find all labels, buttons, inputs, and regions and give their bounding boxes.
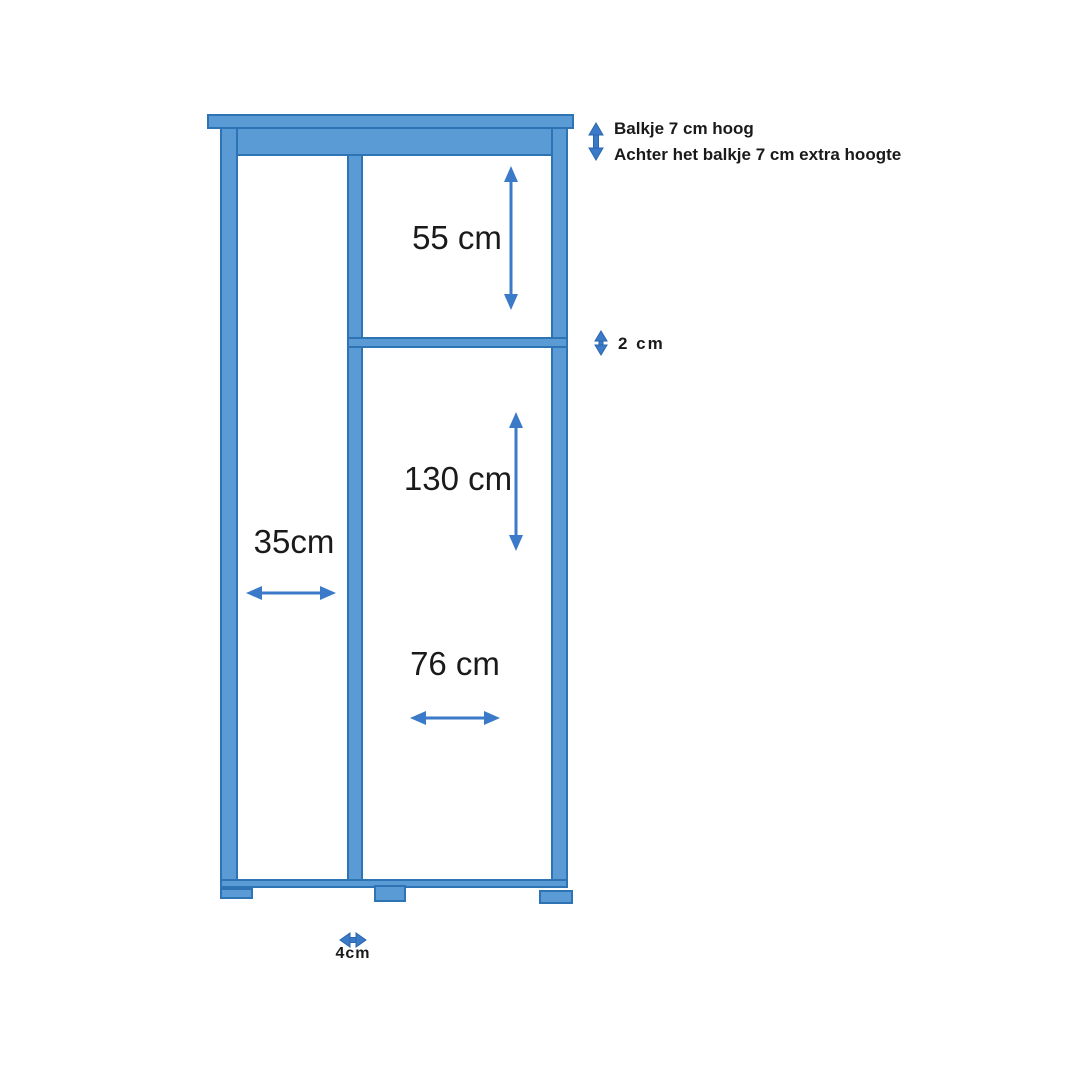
dimension-arrows-layer: [0, 0, 1080, 1080]
balkje-beam: [220, 126, 568, 156]
left-foot: [220, 888, 253, 899]
balkje-note-arrow-icon: [589, 123, 603, 160]
dim-label-4cm: 4cm: [335, 945, 370, 963]
middle-post: [347, 154, 363, 882]
left-post: [220, 126, 238, 882]
dim-arrow-2cm-icon: [595, 331, 607, 355]
right-foot: [539, 890, 573, 904]
dim-label-76cm: 76 cm: [410, 645, 500, 683]
balkje-note-line2: Achter het balkje 7 cm extra hoogte: [614, 145, 901, 165]
balkje-note-line1: Balkje 7 cm hoog: [614, 119, 754, 139]
dim-label-35cm: 35cm: [254, 523, 335, 561]
cabinet-dimension-diagram: 55 cm 130 cm 35cm 76 cm 2 cm 4cm Balkje …: [0, 0, 1080, 1080]
cabinet-top-cap: [207, 114, 574, 129]
middle-foot: [374, 885, 406, 902]
right-post: [551, 126, 568, 882]
dim-arrow-76cm-icon: [410, 711, 500, 725]
shelf: [347, 337, 568, 348]
dim-arrow-35cm-icon: [246, 586, 336, 600]
dim-label-2cm: 2 cm: [618, 334, 665, 354]
dim-arrow-55cm-icon: [504, 166, 518, 310]
dim-label-130cm: 130 cm: [404, 460, 512, 498]
dim-label-55cm: 55 cm: [412, 219, 502, 257]
